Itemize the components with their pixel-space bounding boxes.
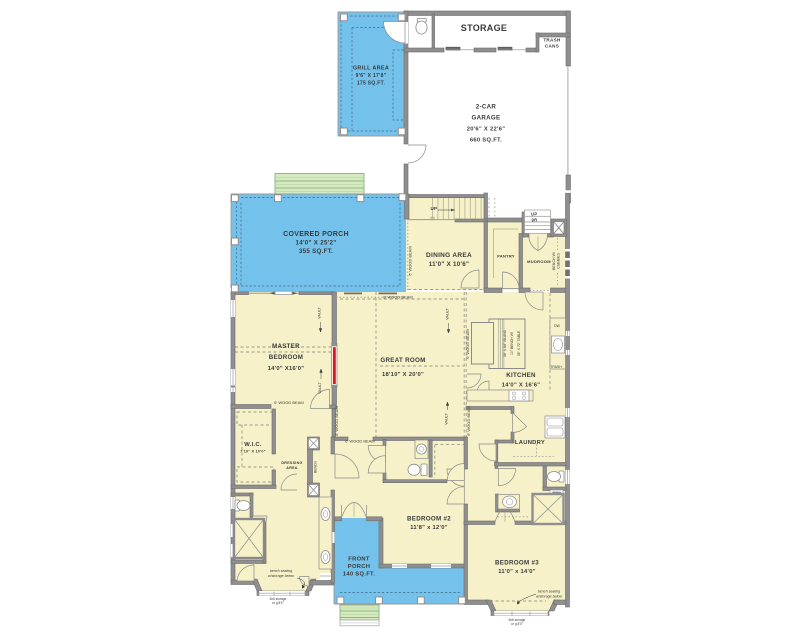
svg-text:GREAT ROOM: GREAT ROOM <box>380 357 425 364</box>
svg-text:BEDROOM #2: BEDROOM #2 <box>407 516 451 523</box>
svg-text:VAULT: VAULT <box>446 307 450 319</box>
svg-text:14'0" X16'0": 14'0" X16'0" <box>268 366 305 372</box>
svg-text:14'0" X 16'6": 14'0" X 16'6" <box>502 383 541 389</box>
svg-text:11'0" x 14'0": 11'0" x 14'0" <box>498 569 536 575</box>
svg-text:VAULT: VAULT <box>445 412 449 424</box>
svg-text:8' WOOD BEAM: 8' WOOD BEAM <box>383 295 412 300</box>
svg-text:TRASH: TRASH <box>543 38 561 43</box>
svg-text:20'6" X 22'6": 20'6" X 22'6" <box>467 127 506 133</box>
svg-text:9R: 9R <box>532 217 538 222</box>
svg-text:UP: UP <box>531 212 537 217</box>
svg-text:BENCH: BENCH <box>314 461 318 473</box>
svg-text:UP: UP <box>431 206 438 211</box>
svg-text:W.I.C.: W.I.C. <box>244 442 262 448</box>
svg-text:CANS: CANS <box>545 44 559 49</box>
svg-text:AREA: AREA <box>286 466 297 470</box>
svg-text:CUBBIES: CUBBIES <box>557 253 561 269</box>
svg-text:7'10" X 10'0": 7'10" X 10'0" <box>240 450 265 454</box>
svg-text:MUDROOM: MUDROOM <box>527 259 551 264</box>
svg-text:36" X 72" TABLE: 36" X 72" TABLE <box>517 330 521 356</box>
svg-text:bench seating: bench seating <box>538 590 560 594</box>
svg-text:6' WOOD BEAM: 6' WOOD BEAM <box>274 400 303 405</box>
svg-text:BEDROOM: BEDROOM <box>269 354 303 361</box>
svg-text:8' WOOD BEAM: 8' WOOD BEAM <box>334 406 339 435</box>
svg-text:18'10" X 20'0": 18'10" X 20'0" <box>382 372 424 378</box>
svg-text:14'0" X 25'2": 14'0" X 25'2" <box>296 240 337 247</box>
svg-text:COVERED PORCH: COVERED PORCH <box>283 231 349 238</box>
svg-text:140 SQ.FT.: 140 SQ.FT. <box>343 572 375 578</box>
svg-text:w/storage below: w/storage below <box>536 595 562 599</box>
svg-text:DW: DW <box>554 324 560 328</box>
svg-text:STORAGE: STORAGE <box>461 23 507 33</box>
svg-text:11'0" X 10'6": 11'0" X 10'6" <box>429 261 470 268</box>
svg-text:PANTRY: PANTRY <box>497 254 515 259</box>
svg-text:9'6" X 17'8": 9'6" X 17'8" <box>356 73 387 79</box>
svg-text:or g 8'0": or g 8'0" <box>511 622 523 626</box>
svg-text:VAULT: VAULT <box>318 381 322 393</box>
svg-text:BENCH W/: BENCH W/ <box>552 252 556 270</box>
svg-text:DRESSING: DRESSING <box>281 461 302 465</box>
svg-text:bench seating: bench seating <box>270 569 292 573</box>
svg-text:6' WOOD BEAM: 6' WOOD BEAM <box>408 246 413 275</box>
svg-text:PORCH: PORCH <box>348 564 370 570</box>
svg-text:GRILL AREA: GRILL AREA <box>353 66 389 72</box>
svg-text:or g 8'0": or g 8'0" <box>272 601 284 605</box>
svg-text:KITCHEN: KITCHEN <box>506 372 536 379</box>
svg-text:BEDROOM #3: BEDROOM #3 <box>495 560 539 567</box>
svg-text:660 SQ.FT.: 660 SQ.FT. <box>470 138 502 144</box>
svg-text:175 SQ.FT.: 175 SQ.FT. <box>357 81 386 87</box>
svg-text:355 SQ.FT.: 355 SQ.FT. <box>299 248 333 255</box>
svg-text:DINING AREA: DINING AREA <box>426 252 472 259</box>
svg-text:6' WOOD BEAM: 6' WOOD BEAM <box>465 329 470 358</box>
svg-text:VAULT: VAULT <box>318 306 322 318</box>
svg-text:6' WOOD BEAM: 6' WOOD BEAM <box>345 439 374 444</box>
svg-text:FRONT: FRONT <box>348 557 370 563</box>
svg-text:GARAGE: GARAGE <box>472 115 501 122</box>
svg-text:10" BENCH W/: 10" BENCH W/ <box>510 332 514 355</box>
svg-text:6' WOOD BEAM: 6' WOOD BEAM <box>466 406 471 435</box>
svg-text:36" X 84" ISLAND: 36" X 84" ISLAND <box>503 329 507 357</box>
svg-text:w/storage below: w/storage below <box>268 574 294 578</box>
svg-text:11'8" x 12'0": 11'8" x 12'0" <box>410 525 448 531</box>
svg-text:2-CAR: 2-CAR <box>476 104 497 111</box>
svg-text:MASTER: MASTER <box>272 343 300 350</box>
svg-text:LAUNDRY: LAUNDRY <box>515 440 545 446</box>
svg-text:TRASH: TRASH <box>550 365 562 369</box>
